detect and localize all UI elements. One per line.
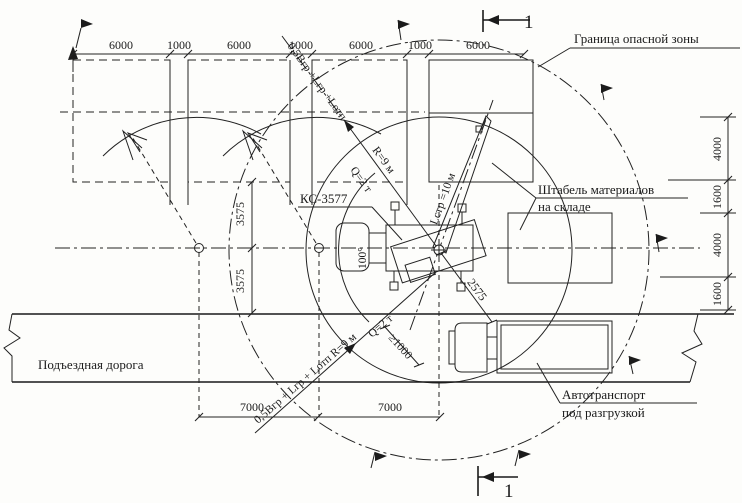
crane-model-label: КС-3577: [300, 191, 348, 206]
stockpile-label-line2: на складе: [538, 199, 591, 214]
building-section-1: [73, 60, 170, 182]
slew-angle-label: 100°: [357, 247, 369, 269]
capacity-label-top: Q=2 т: [348, 165, 374, 195]
dim-top-1: 6000: [109, 38, 133, 52]
load-path-arrows: [123, 131, 316, 243]
dim-top-2: 1000: [167, 38, 191, 52]
boom-length-label: Lстр =10 м: [428, 171, 458, 227]
section-mark-bottom: 1: [478, 466, 518, 502]
dimension-right-chain: 4000 1600 4000 1600: [660, 113, 736, 314]
dim-top-6: 1000: [408, 38, 432, 52]
flag-icon: [76, 19, 93, 48]
radius-arc-position-2: [223, 117, 381, 156]
section-number-bottom: 1: [504, 481, 514, 502]
dim-right-2: 1600: [710, 185, 724, 209]
callout-danger-zone: Граница опасной зоны: [538, 31, 740, 67]
section-mark-top: 1: [483, 10, 534, 33]
dim-left-1: 3575: [233, 202, 247, 226]
building-sections: [60, 46, 533, 205]
drawing-canvas: 100°: [0, 0, 742, 503]
road-break-left: [4, 314, 20, 382]
construction-site-plan: 100°: [0, 0, 742, 503]
building-section-2: [188, 60, 290, 182]
road-break-right: [682, 314, 702, 382]
dimension-clearance: ≥1000: [380, 325, 424, 367]
truck-trailer: [497, 321, 612, 373]
dim-left-2: 3575: [233, 269, 247, 293]
dim-top-7: 6000: [466, 38, 490, 52]
road-label: Подъездная дорога: [38, 357, 144, 372]
dim-right-3: 4000: [710, 233, 724, 257]
truck-cab: [455, 323, 487, 372]
dim-right-4: 1600: [710, 282, 724, 306]
flag-icon: [601, 84, 613, 100]
stockpile-label-line1: Штабель материалов: [538, 182, 654, 197]
flag-icon: [371, 452, 387, 468]
flag-icon: [515, 450, 531, 466]
dim-top-3: 6000: [227, 38, 251, 52]
callout-stockpile: Штабель материалов на складе: [492, 163, 688, 230]
danger-zone-label: Граница опасной зоны: [574, 31, 699, 46]
dim-right-1: 4000: [710, 137, 724, 161]
clearance-label: ≥1000: [386, 332, 415, 362]
dim-bottom-2: 7000: [378, 400, 402, 414]
flag-icon: [629, 356, 641, 374]
crane: [336, 100, 493, 330]
formula-top: 0,5Вгр +Lгр +Lотп: [285, 41, 349, 123]
crane-outriggers: [390, 202, 466, 291]
callout-truck: Автотранспорт под разгрузкой: [537, 363, 697, 420]
section-number-top: 1: [524, 12, 534, 33]
dim-top-5: 6000: [349, 38, 373, 52]
truck-label-line1: Автотранспорт: [562, 387, 646, 402]
flag-icon: [398, 20, 410, 40]
truck-label-line2: под разгрузкой: [562, 405, 645, 420]
building-section-4: [429, 60, 533, 182]
dimension-bottom-chain: 7000 7000: [195, 400, 444, 421]
flag-icon: [656, 234, 668, 252]
radius-arc-position-1: [103, 117, 261, 156]
